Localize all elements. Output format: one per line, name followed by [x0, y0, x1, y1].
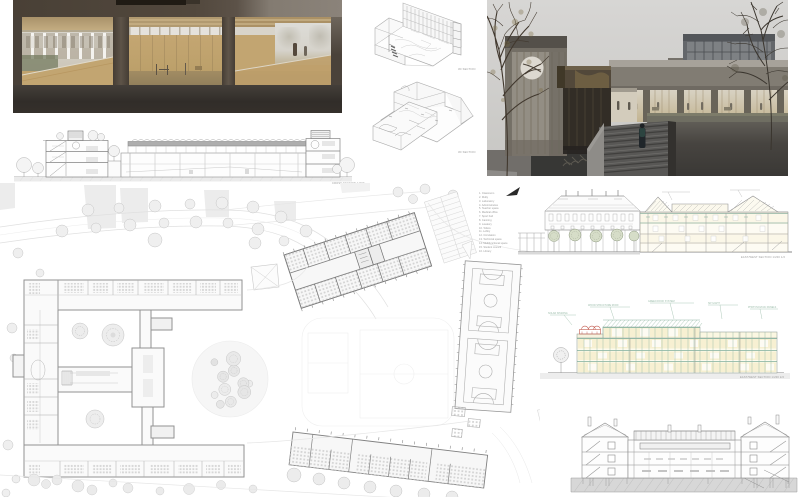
svg-text:SOLAR SHADING: SOLAR SHADING	[548, 312, 568, 315]
svg-text:GREEN ROOF SYSTEM: GREEN ROOF SYSTEM	[648, 300, 675, 303]
svg-text:PHOTOVOLTAIC PANELS: PHOTOVOLTAIC PANELS	[748, 306, 777, 309]
svg-text:SKYLIGHT: SKYLIGHT	[708, 302, 720, 305]
svg-text:WOOD STRUCTURE ROOF: WOOD STRUCTURE ROOF	[588, 304, 619, 307]
